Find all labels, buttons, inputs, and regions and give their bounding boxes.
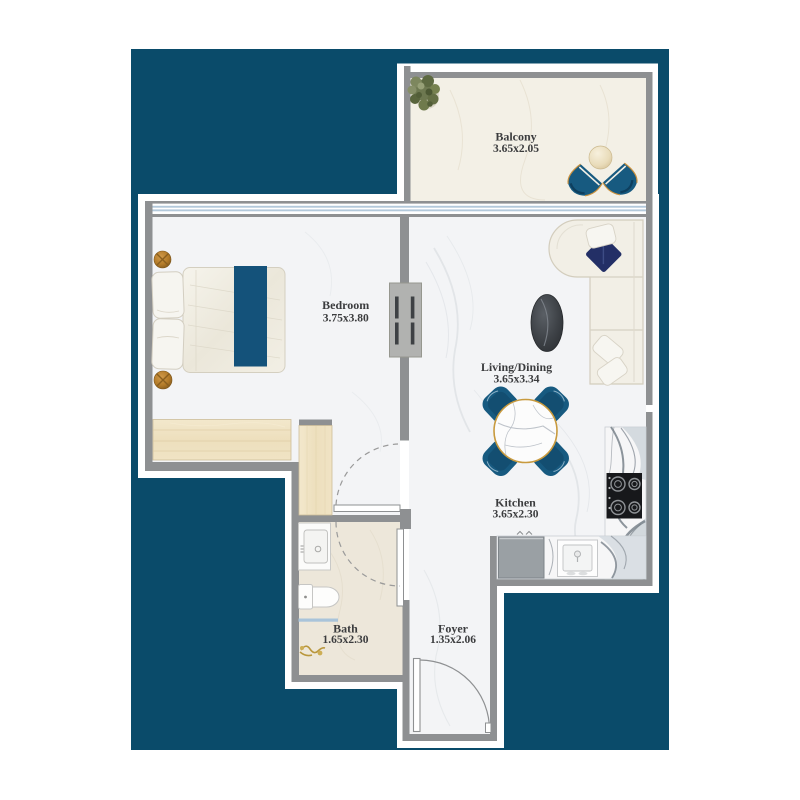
svg-text:3.65x2.30: 3.65x2.30 [493, 509, 539, 521]
svg-text:3.65x3.34: 3.65x3.34 [494, 374, 540, 386]
svg-text:3.75x3.80: 3.75x3.80 [323, 313, 369, 325]
svg-text:3.65x2.05: 3.65x2.05 [493, 143, 539, 155]
svg-text:Balcony: Balcony [495, 130, 536, 144]
svg-text:Bedroom: Bedroom [322, 298, 369, 312]
svg-text:Kitchen: Kitchen [495, 496, 536, 510]
svg-text:1.35x2.06: 1.35x2.06 [430, 634, 476, 646]
svg-text:1.65x2.30: 1.65x2.30 [323, 634, 369, 646]
svg-text:Living/Dining: Living/Dining [481, 360, 552, 374]
